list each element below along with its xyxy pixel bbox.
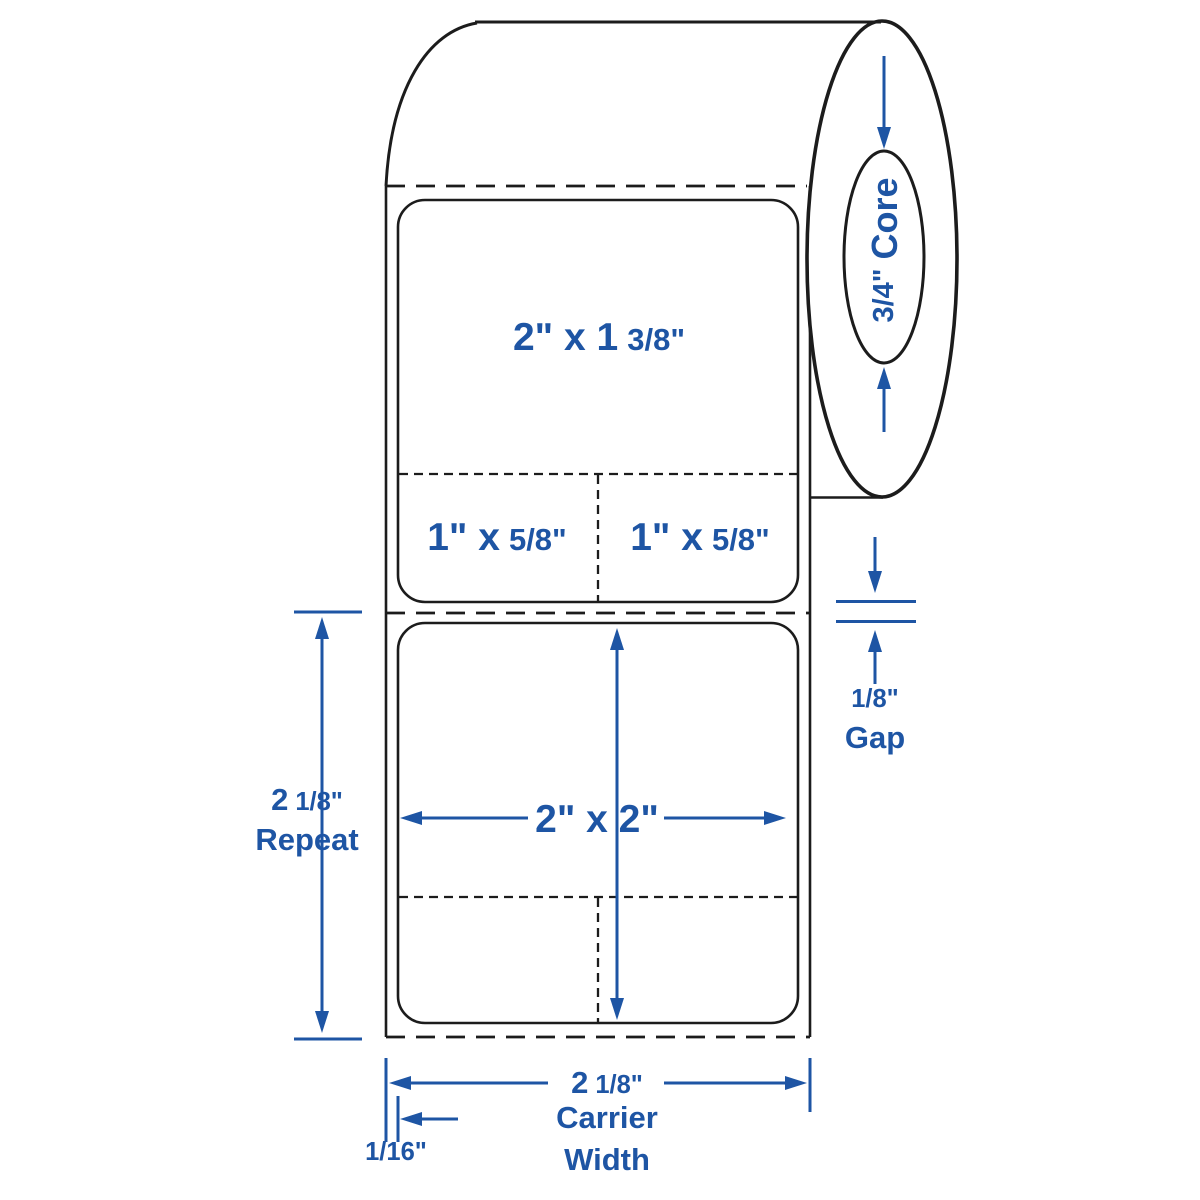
label-1-size-fraction: 3/8" — [627, 322, 685, 357]
label-2-size-value: 2" x 2" — [535, 798, 659, 841]
edge-offset-arrow-head — [400, 1112, 422, 1126]
label-1-left-whole: 1" x — [427, 516, 500, 559]
repeat-word-text: Repeat — [255, 822, 358, 857]
gap-word-text: Gap — [845, 720, 905, 755]
edge-offset-fraction: 1/16" — [365, 1138, 427, 1166]
carrier-value-text: 21/8" — [571, 1065, 643, 1100]
carrier-value-fraction: 1/8" — [595, 1071, 643, 1099]
carrier-value-whole: 2 — [571, 1065, 588, 1100]
label-roll-spec-diagram: 2" x 13/8" 1" x5/8" 1" x5/8" 2" x 2" 3/4… — [0, 0, 1200, 1200]
repeat-arrow-up-head — [315, 617, 329, 639]
core-size-text: 3/4"Core — [864, 177, 905, 322]
label-1-right-size-text: 1" x5/8" — [630, 516, 770, 559]
label-1-right-whole: 1" x — [630, 516, 703, 559]
repeat-arrow-down-head — [315, 1011, 329, 1033]
label-2-height-arrow-down-head — [610, 998, 624, 1020]
label-1-left-fraction: 5/8" — [509, 522, 567, 557]
repeat-value-fraction: 1/8" — [295, 788, 343, 816]
label-2-size-text: 2" x 2" — [535, 798, 659, 841]
carrier-word-line2: Width — [564, 1142, 650, 1177]
roll-left-curve — [386, 23, 477, 186]
gap-value-text: 1/8" — [851, 685, 899, 713]
label-1-size-whole: 2" x 1 — [513, 316, 618, 359]
carrier-arrow-right-head — [785, 1076, 807, 1090]
carrier-width-annotation: 21/8" Carrier Width 1/16" — [365, 1058, 810, 1177]
core-size-fraction: 3/4" — [868, 268, 900, 322]
repeat-value-whole: 2 — [271, 782, 288, 817]
gap-down-arrow-head — [868, 571, 882, 593]
label-1-left-size-text: 1" x5/8" — [427, 516, 567, 559]
label-2-height-arrow-up-head — [610, 628, 624, 650]
gap-annotation: 1/8" Gap — [836, 537, 916, 755]
repeat-value-text: 21/8" — [271, 782, 343, 817]
gap-up-arrow-head — [868, 630, 882, 652]
label-2-width-arrow-right-head — [764, 811, 786, 825]
carrier-word-line1: Carrier — [556, 1100, 658, 1135]
gap-value-fraction: 1/8" — [851, 685, 899, 713]
label-1-right-fraction: 5/8" — [712, 522, 770, 557]
label-2-width-arrow-left-head — [400, 811, 422, 825]
label-1-size-text: 2" x 13/8" — [513, 316, 685, 359]
edge-offset-value-text: 1/16" — [365, 1138, 427, 1166]
repeat-annotation: 21/8" Repeat — [255, 612, 362, 1039]
label-1: 2" x 13/8" 1" x5/8" 1" x5/8" — [398, 200, 798, 602]
label-2: 2" x 2" — [398, 623, 798, 1023]
core-size-word: Core — [864, 177, 905, 259]
carrier-arrow-left-head — [389, 1076, 411, 1090]
